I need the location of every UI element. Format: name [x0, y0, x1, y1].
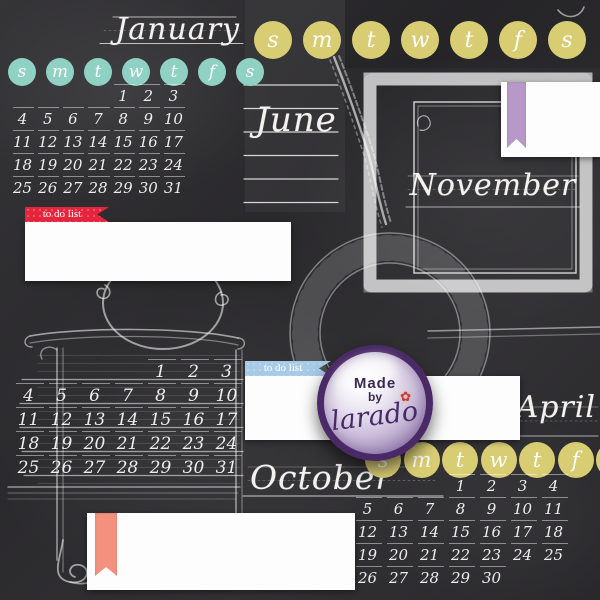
calendar-day: 21	[414, 544, 445, 567]
flower-icon: ✿	[400, 389, 411, 405]
calendar-day: 15	[111, 131, 136, 154]
calendar-day: 9	[136, 108, 161, 131]
untitled-month-date-grid: 1234567891011121314151617181920212223242…	[12, 360, 243, 480]
day-header-circle: s	[8, 58, 36, 86]
day-header-circle: s	[254, 21, 292, 59]
calendar-day: 15	[144, 408, 177, 432]
calendar-day: 27	[60, 177, 85, 200]
calendar-day: 25	[538, 544, 569, 567]
january-day-header-row: smtwtfs	[8, 58, 264, 86]
calendar-day: 31	[161, 177, 186, 200]
calendar-day: 24	[161, 154, 186, 177]
calendar-day: 1	[144, 360, 177, 384]
calendar-day	[10, 85, 35, 108]
june-title: June	[252, 100, 340, 140]
note-box-bottom	[87, 513, 355, 590]
day-header-circle: t	[442, 442, 478, 478]
day-header-circle: t	[450, 21, 488, 59]
calendar-day: 6	[383, 498, 414, 521]
day-header-circle: w	[122, 58, 150, 86]
calendar-day: 2	[136, 85, 161, 108]
calendar-day: 26	[45, 456, 78, 480]
april-date-grid: 1234567891011121314151617181920212223242…	[352, 475, 569, 590]
calendar-day: 8	[445, 498, 476, 521]
calendar-day: 9	[177, 384, 210, 408]
calendar-day: 18	[10, 154, 35, 177]
calendar-day: 21	[111, 432, 144, 456]
calendar-day: 14	[414, 521, 445, 544]
calendar-day: 3	[161, 85, 186, 108]
day-header-circle: t	[160, 58, 188, 86]
calendar-day: 8	[111, 108, 136, 131]
calendar-day: 16	[476, 521, 507, 544]
calendar-day: 3	[210, 360, 243, 384]
calendar-day: 10	[161, 108, 186, 131]
calendar-day: 17	[161, 131, 186, 154]
calendar-day: 13	[383, 521, 414, 544]
calendar-day: 3	[507, 475, 538, 498]
calendar-day: 31	[210, 456, 243, 480]
november-title: November	[400, 168, 586, 203]
calendar-day: 5	[45, 384, 78, 408]
calendar-day	[111, 360, 144, 384]
calendar-day: 5	[35, 108, 60, 131]
calendar-day: 10	[507, 498, 538, 521]
calendar-day	[60, 85, 85, 108]
calendar-day: 18	[12, 432, 45, 456]
calendar-day: 25	[12, 456, 45, 480]
day-header-circle: m	[46, 58, 74, 86]
calendar-day	[507, 567, 538, 590]
calendar-day: 28	[111, 456, 144, 480]
calendar-day: 29	[111, 177, 136, 200]
calendar-day	[538, 567, 569, 590]
calendar-day: 27	[78, 456, 111, 480]
corner-squiggle	[558, 7, 584, 16]
calendar-day: 4	[10, 108, 35, 131]
calendar-day: 13	[78, 408, 111, 432]
calendar-day: 29	[144, 456, 177, 480]
calendar-day: 19	[45, 432, 78, 456]
calendar-day	[78, 360, 111, 384]
day-header-circle: t	[352, 21, 390, 59]
day-header-circle: m	[303, 21, 341, 59]
calendar-day: 18	[538, 521, 569, 544]
calendar-day: 4	[538, 475, 569, 498]
todo-banner-red: to do list	[25, 207, 109, 222]
calendar-day: 26	[35, 177, 60, 200]
calendar-day: 20	[60, 154, 85, 177]
calendar-day	[414, 475, 445, 498]
calendar-day: 9	[476, 498, 507, 521]
calendar-day: 16	[177, 408, 210, 432]
calendar-day: 4	[12, 384, 45, 408]
calendar-day: 14	[111, 408, 144, 432]
calendar-day: 6	[78, 384, 111, 408]
day-header-circle: w	[481, 442, 517, 478]
calendar-day: 28	[85, 177, 110, 200]
day-header-circle: t	[519, 442, 555, 478]
coral-ribbon	[95, 513, 117, 576]
calendar-day	[383, 475, 414, 498]
day-header-circle: s	[548, 21, 586, 59]
day-header-circle: f	[499, 21, 537, 59]
calendar-day	[352, 475, 383, 498]
calendar-day: 23	[177, 432, 210, 456]
calendar-day	[45, 360, 78, 384]
calendar-day: 24	[210, 432, 243, 456]
calendar-day: 14	[85, 131, 110, 154]
calendar-day: 23	[476, 544, 507, 567]
day-header-circle: f	[558, 442, 594, 478]
todo-banner-blue: to do list	[245, 361, 331, 376]
calendar-day: 7	[85, 108, 110, 131]
calendar-day: 8	[144, 384, 177, 408]
calendar-day: 5	[352, 498, 383, 521]
calendar-day: 11	[12, 408, 45, 432]
calendar-day: 7	[414, 498, 445, 521]
calendar-day: 23	[136, 154, 161, 177]
calendar-day: 17	[507, 521, 538, 544]
calendar-day: 1	[445, 475, 476, 498]
calendar-day: 20	[383, 544, 414, 567]
calendar-day: 2	[177, 360, 210, 384]
calendar-day: 22	[144, 432, 177, 456]
calendar-day: 19	[35, 154, 60, 177]
calendar-day: 11	[538, 498, 569, 521]
calendar-day: 29	[445, 567, 476, 590]
badge-made-label: Made	[354, 376, 396, 391]
top-day-header-strip: smtwtfs	[254, 21, 586, 59]
calendar-day: 22	[111, 154, 136, 177]
january-title: January	[95, 12, 240, 47]
calendar-day: 13	[60, 131, 85, 154]
day-header-circle: f	[198, 58, 226, 86]
day-header-circle: t	[84, 58, 112, 86]
calendar-day: 21	[85, 154, 110, 177]
day-header-circle: s	[596, 442, 600, 478]
day-header-circle: w	[401, 21, 439, 59]
day-header-circle: s	[236, 58, 264, 86]
calendar-day: 12	[35, 131, 60, 154]
calendar-day: 10	[210, 384, 243, 408]
calendar-day: 30	[136, 177, 161, 200]
purple-ribbon	[507, 82, 526, 148]
calendar-day: 22	[445, 544, 476, 567]
calendar-day	[12, 360, 45, 384]
todo-note-box-red	[25, 222, 291, 281]
calendar-day: 17	[210, 408, 243, 432]
calendar-day: 6	[60, 108, 85, 131]
calendar-day: 24	[507, 544, 538, 567]
calendar-day: 16	[136, 131, 161, 154]
calendar-day: 28	[414, 567, 445, 590]
calendar-day: 15	[445, 521, 476, 544]
calendar-day: 11	[10, 131, 35, 154]
calendar-day: 27	[383, 567, 414, 590]
calendar-day: 30	[476, 567, 507, 590]
maker-badge: Made by larado ✿	[317, 345, 433, 461]
calendar-day: 1	[111, 85, 136, 108]
calendar-day: 2	[476, 475, 507, 498]
calendar-day: 7	[111, 384, 144, 408]
calendar-day: 19	[352, 544, 383, 567]
january-date-grid: 1234567891011121314151617181920212223242…	[10, 85, 186, 200]
calendar-day: 12	[45, 408, 78, 432]
calendar-day: 12	[352, 521, 383, 544]
calendar-day: 25	[10, 177, 35, 200]
calendar-day	[35, 85, 60, 108]
calendar-day: 30	[177, 456, 210, 480]
calendar-day: 20	[78, 432, 111, 456]
divider-lines	[428, 327, 600, 338]
calendar-day: 26	[352, 567, 383, 590]
calendar-day	[85, 85, 110, 108]
